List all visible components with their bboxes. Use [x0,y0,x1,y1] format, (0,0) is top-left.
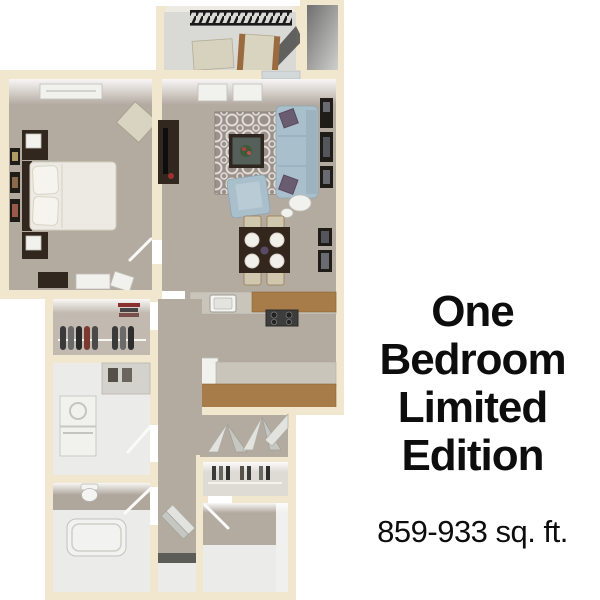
hall-wall-seg [150,290,158,302]
title-line-4: Edition [345,432,600,480]
entry-room-wall-face-top [203,503,288,513]
dining-chair [244,272,261,285]
burner [271,319,276,324]
floorplan-page: One Bedroom Limited Edition 859-933 sq. … [0,0,600,600]
flower [242,147,246,151]
balcony-railing [190,11,292,25]
closet-door-nook [200,414,288,457]
closet-bottom-wall [45,355,158,363]
bathroom-wall-face [53,483,150,495]
railing-bottom-bar [190,23,292,26]
bench [76,274,110,289]
tv [163,128,168,174]
kitchen-lower-counter [216,362,336,386]
table-lamp [26,134,41,148]
decor-vase [168,173,174,179]
dining-chair [267,272,284,285]
bedroom-bottom-wall [0,290,162,299]
hall-wall-seg [150,330,158,425]
coffee-table [229,134,264,168]
storage-floor [307,5,338,70]
storage-left-wall [300,0,308,78]
lower-left-wall [196,462,203,600]
laundry-bottom-wall [45,475,158,483]
kitchen-bottom-wall [196,407,344,415]
entry-room [203,503,288,592]
entry-room-floor [203,545,288,592]
linen-closet [203,462,288,496]
place-setting [270,233,284,247]
caption: One Bedroom Limited Edition 859-933 sq. … [345,288,600,550]
dryer [60,427,96,456]
burner [286,319,291,324]
bed [22,161,116,231]
art-print [12,152,18,161]
pillow [32,165,58,194]
entry-threshold [158,553,198,563]
place-setting [245,233,259,247]
title-line-2: Bedroom [345,336,600,384]
ceiling-vent [233,84,262,101]
sink-basin [214,298,232,309]
entry-room-wall-face [276,503,288,592]
sofa-back [306,110,317,194]
toilet [81,484,98,502]
pillow [32,196,58,225]
railing-top-bar [190,10,292,13]
breakfast-bar [252,292,336,312]
living-room [158,79,336,291]
hallway-floor [158,299,202,592]
burner [271,312,277,318]
closet-shelf-items [118,303,140,317]
title-line-3: Limited [345,384,600,432]
square-footage: 859-933 sq. ft. [345,514,600,550]
shelf-item [108,368,118,382]
laundry-room [53,363,150,475]
hall-wall-seg [150,525,158,600]
hallway [158,299,202,592]
gallery-frames-right-wall [318,98,333,272]
bedroom [9,79,158,292]
right-outer-wall [336,70,344,415]
ceiling-vent [198,84,227,101]
tv-stand [158,120,179,184]
kitchen [185,290,336,408]
patio-chair [237,34,281,75]
balcony [156,6,304,78]
shelf-item [122,368,132,382]
linen-hanging-items [212,466,270,480]
patio-ottoman [192,39,234,71]
bottom-outer-wall [45,592,296,600]
wing-left-wall [45,290,53,600]
bathtub [67,519,126,556]
place-setting [245,254,259,268]
table-lamp [26,236,41,250]
armchair-seat [235,181,262,210]
art-print [12,177,18,188]
storage-closet [300,0,344,78]
walk-in-closet [53,299,150,355]
left-outer-wall [0,70,9,299]
stove [266,310,298,326]
linen-bottom-wall-b [232,496,296,503]
plan-title: One Bedroom Limited Edition [345,288,600,480]
washer [60,396,96,426]
armchair [227,174,271,218]
burner [286,312,292,318]
art-print [12,204,18,217]
hanging-clothes [60,326,134,350]
lower-right-wall [288,407,296,600]
dresser [38,272,68,288]
table-centerpiece [261,247,269,255]
entry-floor [158,563,198,592]
bar-counter [196,384,336,408]
place-setting [270,254,284,268]
floral-centerpiece [240,145,252,157]
flower [247,151,251,155]
title-line-1: One [345,288,600,336]
sliding-glass-door [262,71,300,79]
sofa [276,106,318,198]
side-table [289,195,311,211]
hall-wall-seg [150,462,158,487]
bathroom [53,483,150,592]
storage-right-wall [337,0,344,78]
